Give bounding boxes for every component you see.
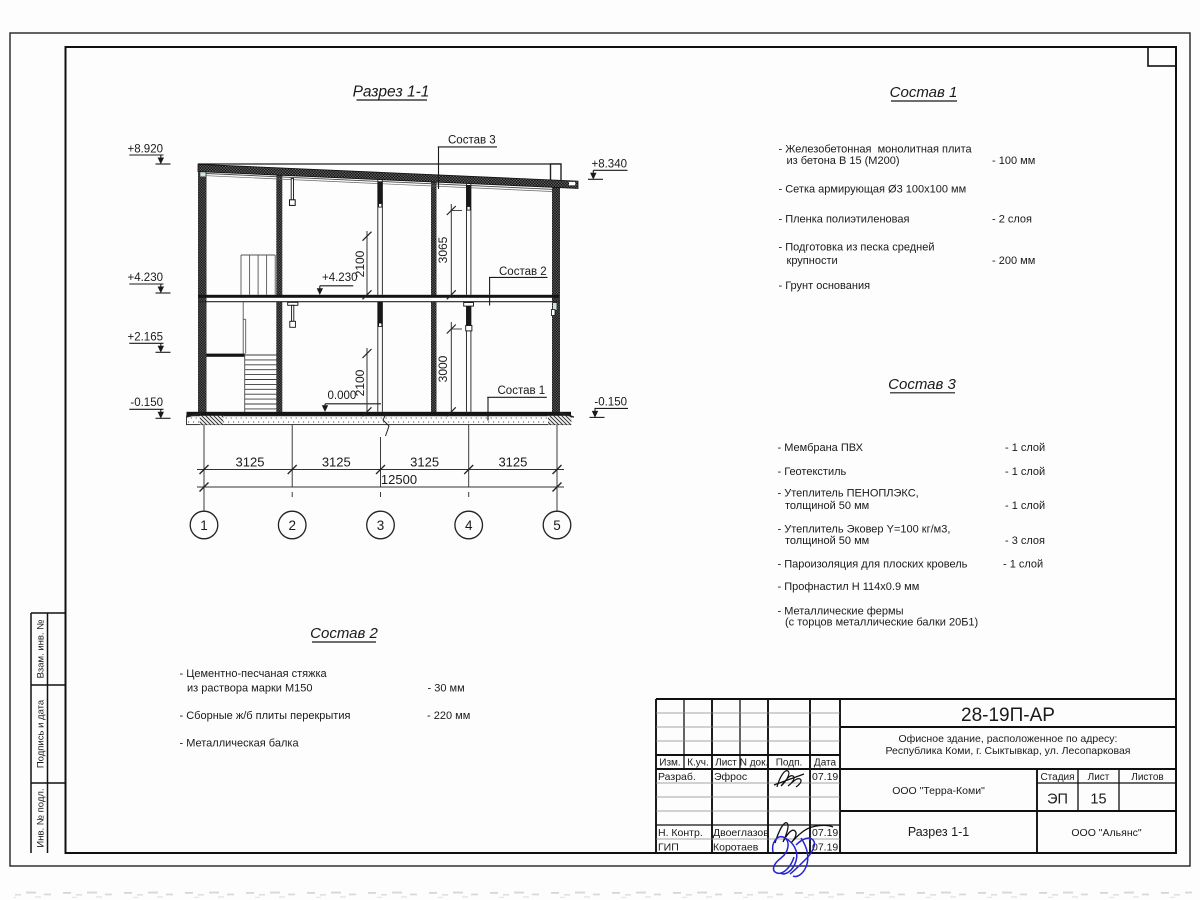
svg-text:из раствора марки М150: из раствора марки М150: [187, 683, 312, 695]
svg-text:4: 4: [465, 518, 473, 533]
svg-text:Инв. № подл.: Инв. № подл.: [36, 788, 47, 847]
svg-text:ЭП: ЭП: [1047, 792, 1068, 808]
svg-text:Подп.: Подп.: [776, 758, 803, 769]
svg-text:- Утеплитель Эковер Y=100 кг/м: - Утеплитель Эковер Y=100 кг/м3,: [778, 523, 951, 535]
svg-text:- Металлические фермы: - Металлические фермы: [778, 605, 904, 617]
svg-text:- Пленка полиэтиленовая: - Пленка полиэтиленовая: [779, 214, 910, 226]
svg-text:- 3 слоя: - 3 слоя: [1005, 535, 1045, 547]
svg-text:Двоеглазов: Двоеглазов: [713, 827, 769, 839]
svg-text:Лист: Лист: [1088, 772, 1110, 783]
svg-text:- Утеплитель ПЕНОПЛЭКС,: - Утеплитель ПЕНОПЛЭКС,: [778, 488, 919, 500]
svg-text:- 30 мм: - 30 мм: [428, 683, 465, 695]
svg-text:Разрез 1-1: Разрез 1-1: [353, 84, 430, 101]
svg-text:- 1 слой: - 1 слой: [1003, 558, 1043, 570]
svg-text:- Грунт основания: - Грунт основания: [779, 280, 871, 292]
svg-text:- Железобетонная монолитная п: - Железобетонная монолитная плита: [779, 143, 973, 155]
svg-text:Коротаев: Коротаев: [713, 842, 759, 854]
svg-text:Состав 1: Состав 1: [498, 385, 546, 397]
svg-text:крупности: крупности: [787, 255, 838, 267]
svg-text:N док.: N док.: [740, 758, 769, 769]
svg-text:1: 1: [200, 518, 208, 533]
svg-text:15: 15: [1090, 792, 1106, 808]
svg-text:2100: 2100: [353, 250, 367, 277]
svg-text:Стадия: Стадия: [1040, 772, 1074, 783]
svg-text:3125: 3125: [410, 455, 439, 470]
svg-text:-0.150: -0.150: [130, 397, 163, 409]
svg-text:2: 2: [288, 518, 296, 533]
svg-text:+4.230: +4.230: [128, 272, 164, 284]
svg-text:- 1 слой: - 1 слой: [1005, 442, 1045, 454]
svg-text:- 220 мм: - 220 мм: [427, 710, 470, 722]
svg-text:07.19: 07.19: [812, 771, 838, 783]
svg-text:3065: 3065: [436, 236, 450, 263]
svg-text:ООО "Терра-Коми": ООО "Терра-Коми": [892, 785, 985, 797]
svg-text:Республика Коми, г. Сыктывкар,: Республика Коми, г. Сыктывкар, ул. Лесоп…: [886, 745, 1131, 757]
svg-text:Состав 3: Состав 3: [448, 134, 496, 146]
svg-text:Эфрос: Эфрос: [714, 771, 747, 783]
svg-text:3: 3: [377, 518, 385, 533]
svg-text:- 200 мм: - 200 мм: [992, 255, 1035, 267]
svg-text:- Сетка армирующая Ø3 100х100: - Сетка армирующая Ø3 100х100 мм: [779, 184, 967, 196]
svg-text:07.19: 07.19: [812, 827, 838, 839]
svg-text:- Металлическая балка: - Металлическая балка: [180, 737, 300, 749]
svg-text:- Геотекстиль: - Геотекстиль: [778, 466, 847, 478]
svg-text:0.000: 0.000: [328, 390, 357, 402]
svg-text:Состав 3: Состав 3: [888, 376, 956, 393]
svg-text:- 2 слоя: - 2 слоя: [992, 214, 1032, 226]
svg-text:-0.150: -0.150: [594, 396, 627, 408]
svg-text:ООО "Альянс": ООО "Альянс": [1071, 827, 1141, 839]
svg-text:Состав 1: Состав 1: [890, 84, 958, 101]
svg-text:28-19П-АР: 28-19П-АР: [961, 705, 1055, 726]
svg-text:Разрез 1-1: Разрез 1-1: [908, 825, 969, 839]
svg-text:К.уч.: К.уч.: [687, 758, 709, 769]
svg-text:Взам. инв. №: Взам. инв. №: [36, 620, 47, 679]
svg-text:12500: 12500: [381, 472, 417, 487]
svg-text:Н. Контр.: Н. Контр.: [658, 827, 703, 839]
svg-text:- Сборные ж/б плиты перекрытия: - Сборные ж/б плиты перекрытия: [180, 710, 351, 722]
svg-text:Листов: Листов: [1131, 772, 1164, 783]
svg-text:толщиной 50 мм: толщиной 50 мм: [785, 500, 869, 512]
svg-text:Дата: Дата: [814, 758, 837, 769]
svg-text:Состав 2: Состав 2: [499, 266, 547, 278]
svg-text:толщиной 50 мм: толщиной 50 мм: [785, 535, 869, 547]
svg-text:+8.340: +8.340: [592, 158, 628, 170]
svg-text:Лист: Лист: [715, 758, 737, 769]
svg-text:Разраб.: Разраб.: [658, 771, 696, 783]
svg-text:Офисное здание, расположенное: Офисное здание, расположенное по адресу:: [899, 733, 1118, 745]
svg-text:Состав 2: Состав 2: [310, 625, 378, 642]
svg-text:- 100 мм: - 100 мм: [992, 155, 1035, 167]
svg-text:- 1 слой: - 1 слой: [1005, 466, 1045, 478]
svg-text:07.19: 07.19: [812, 842, 838, 854]
svg-text:3125: 3125: [498, 455, 527, 470]
svg-text:3125: 3125: [322, 455, 351, 470]
svg-text:+8.920: +8.920: [128, 144, 164, 156]
svg-text:Подпись и дата: Подпись и дата: [36, 699, 47, 768]
svg-text:+2.165: +2.165: [128, 331, 164, 343]
svg-text:- Подготовка из песка средней: - Подготовка из песка средней: [779, 242, 935, 254]
svg-text:Изм.: Изм.: [659, 758, 680, 769]
svg-text:(с торцов металлические балки: (с торцов металлические балки 20Б1): [785, 617, 978, 629]
svg-text:2100: 2100: [353, 369, 367, 396]
svg-text:из бетона В 15 (М200): из бетона В 15 (М200): [787, 155, 900, 167]
svg-text:3000: 3000: [436, 355, 450, 382]
svg-text:- Мембрана ПВХ: - Мембрана ПВХ: [778, 442, 864, 454]
svg-text:3125: 3125: [236, 455, 265, 470]
svg-text:- 1 слой: - 1 слой: [1005, 500, 1045, 512]
svg-text:- Пароизоляция для плоских кро: - Пароизоляция для плоских кровель: [778, 558, 968, 570]
svg-text:- Цементно-песчаная стяжка: - Цементно-песчаная стяжка: [180, 668, 328, 680]
svg-text:- Профнастил Н 114х0.9 мм: - Профнастил Н 114х0.9 мм: [778, 581, 920, 593]
svg-text:ГИП: ГИП: [658, 842, 679, 854]
svg-text:5: 5: [553, 518, 561, 533]
